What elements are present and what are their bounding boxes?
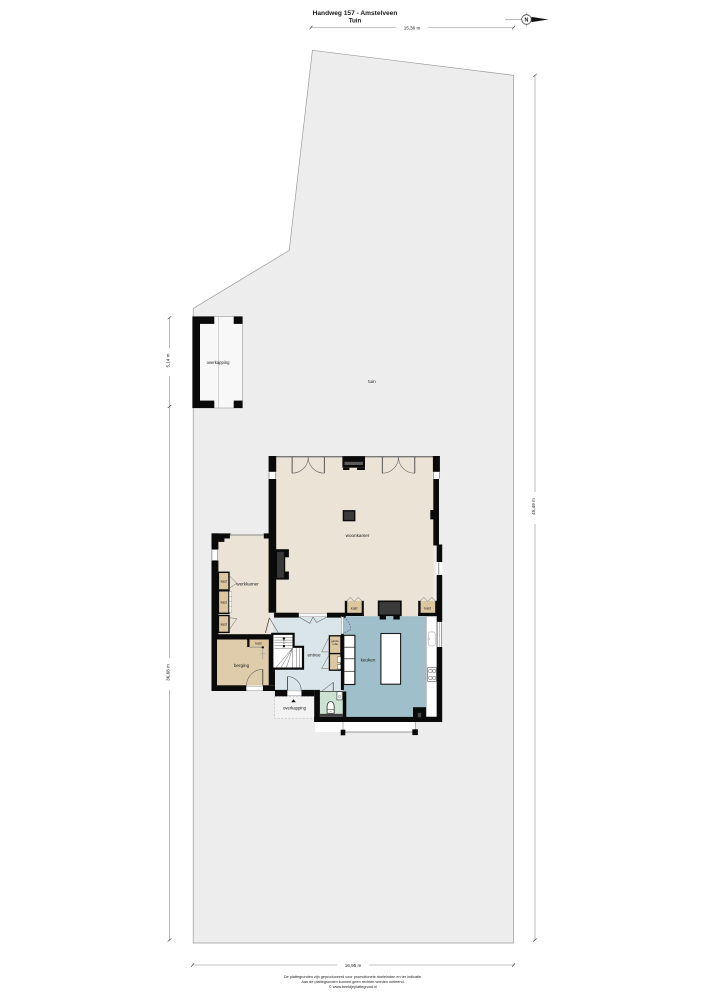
svg-text:berging: berging (234, 663, 250, 668)
svg-text:overkapping: overkapping (207, 360, 230, 365)
svg-text:45,49 m: 45,49 m (531, 498, 536, 515)
svg-text:kast: kast (255, 642, 261, 646)
svg-text:Aan de plattegronden kunnen ge: Aan de plattegronden kunnen geen rechten… (301, 980, 404, 984)
svg-text:kast: kast (221, 601, 227, 605)
svg-text:werkkamer: werkkamer (236, 582, 259, 587)
svg-text:kast: kast (424, 607, 431, 611)
svg-text:tuin: tuin (368, 379, 376, 384)
svg-text:Handweg 157 - Amstelveen: Handweg 157 - Amstelveen (313, 10, 398, 17)
svg-text:kast: kast (351, 607, 358, 611)
svg-text:overkapping: overkapping (283, 706, 306, 711)
svg-text:15,36 m: 15,36 m (404, 26, 421, 31)
svg-text:Tuin: Tuin (349, 18, 362, 25)
svg-text:© www.beeldjeplattegrond.nl: © www.beeldjeplattegrond.nl (329, 985, 377, 989)
svg-text:5,14 m: 5,14 m (166, 353, 171, 367)
svg-text:robe: robe (332, 642, 338, 646)
svg-text:entree: entree (307, 653, 320, 658)
svg-text:16,95 m: 16,95 m (345, 963, 362, 968)
svg-text:36,68 m: 36,68 m (166, 664, 171, 681)
svg-text:kast: kast (221, 623, 227, 627)
svg-text:kast: kast (221, 580, 227, 584)
svg-text:De plattegronden zijn geproduc: De plattegronden zijn geproduceerd voor … (284, 975, 422, 979)
svg-text:keuken: keuken (361, 658, 376, 663)
svg-text:N: N (525, 17, 529, 23)
svg-text:woonkamer: woonkamer (346, 533, 370, 538)
